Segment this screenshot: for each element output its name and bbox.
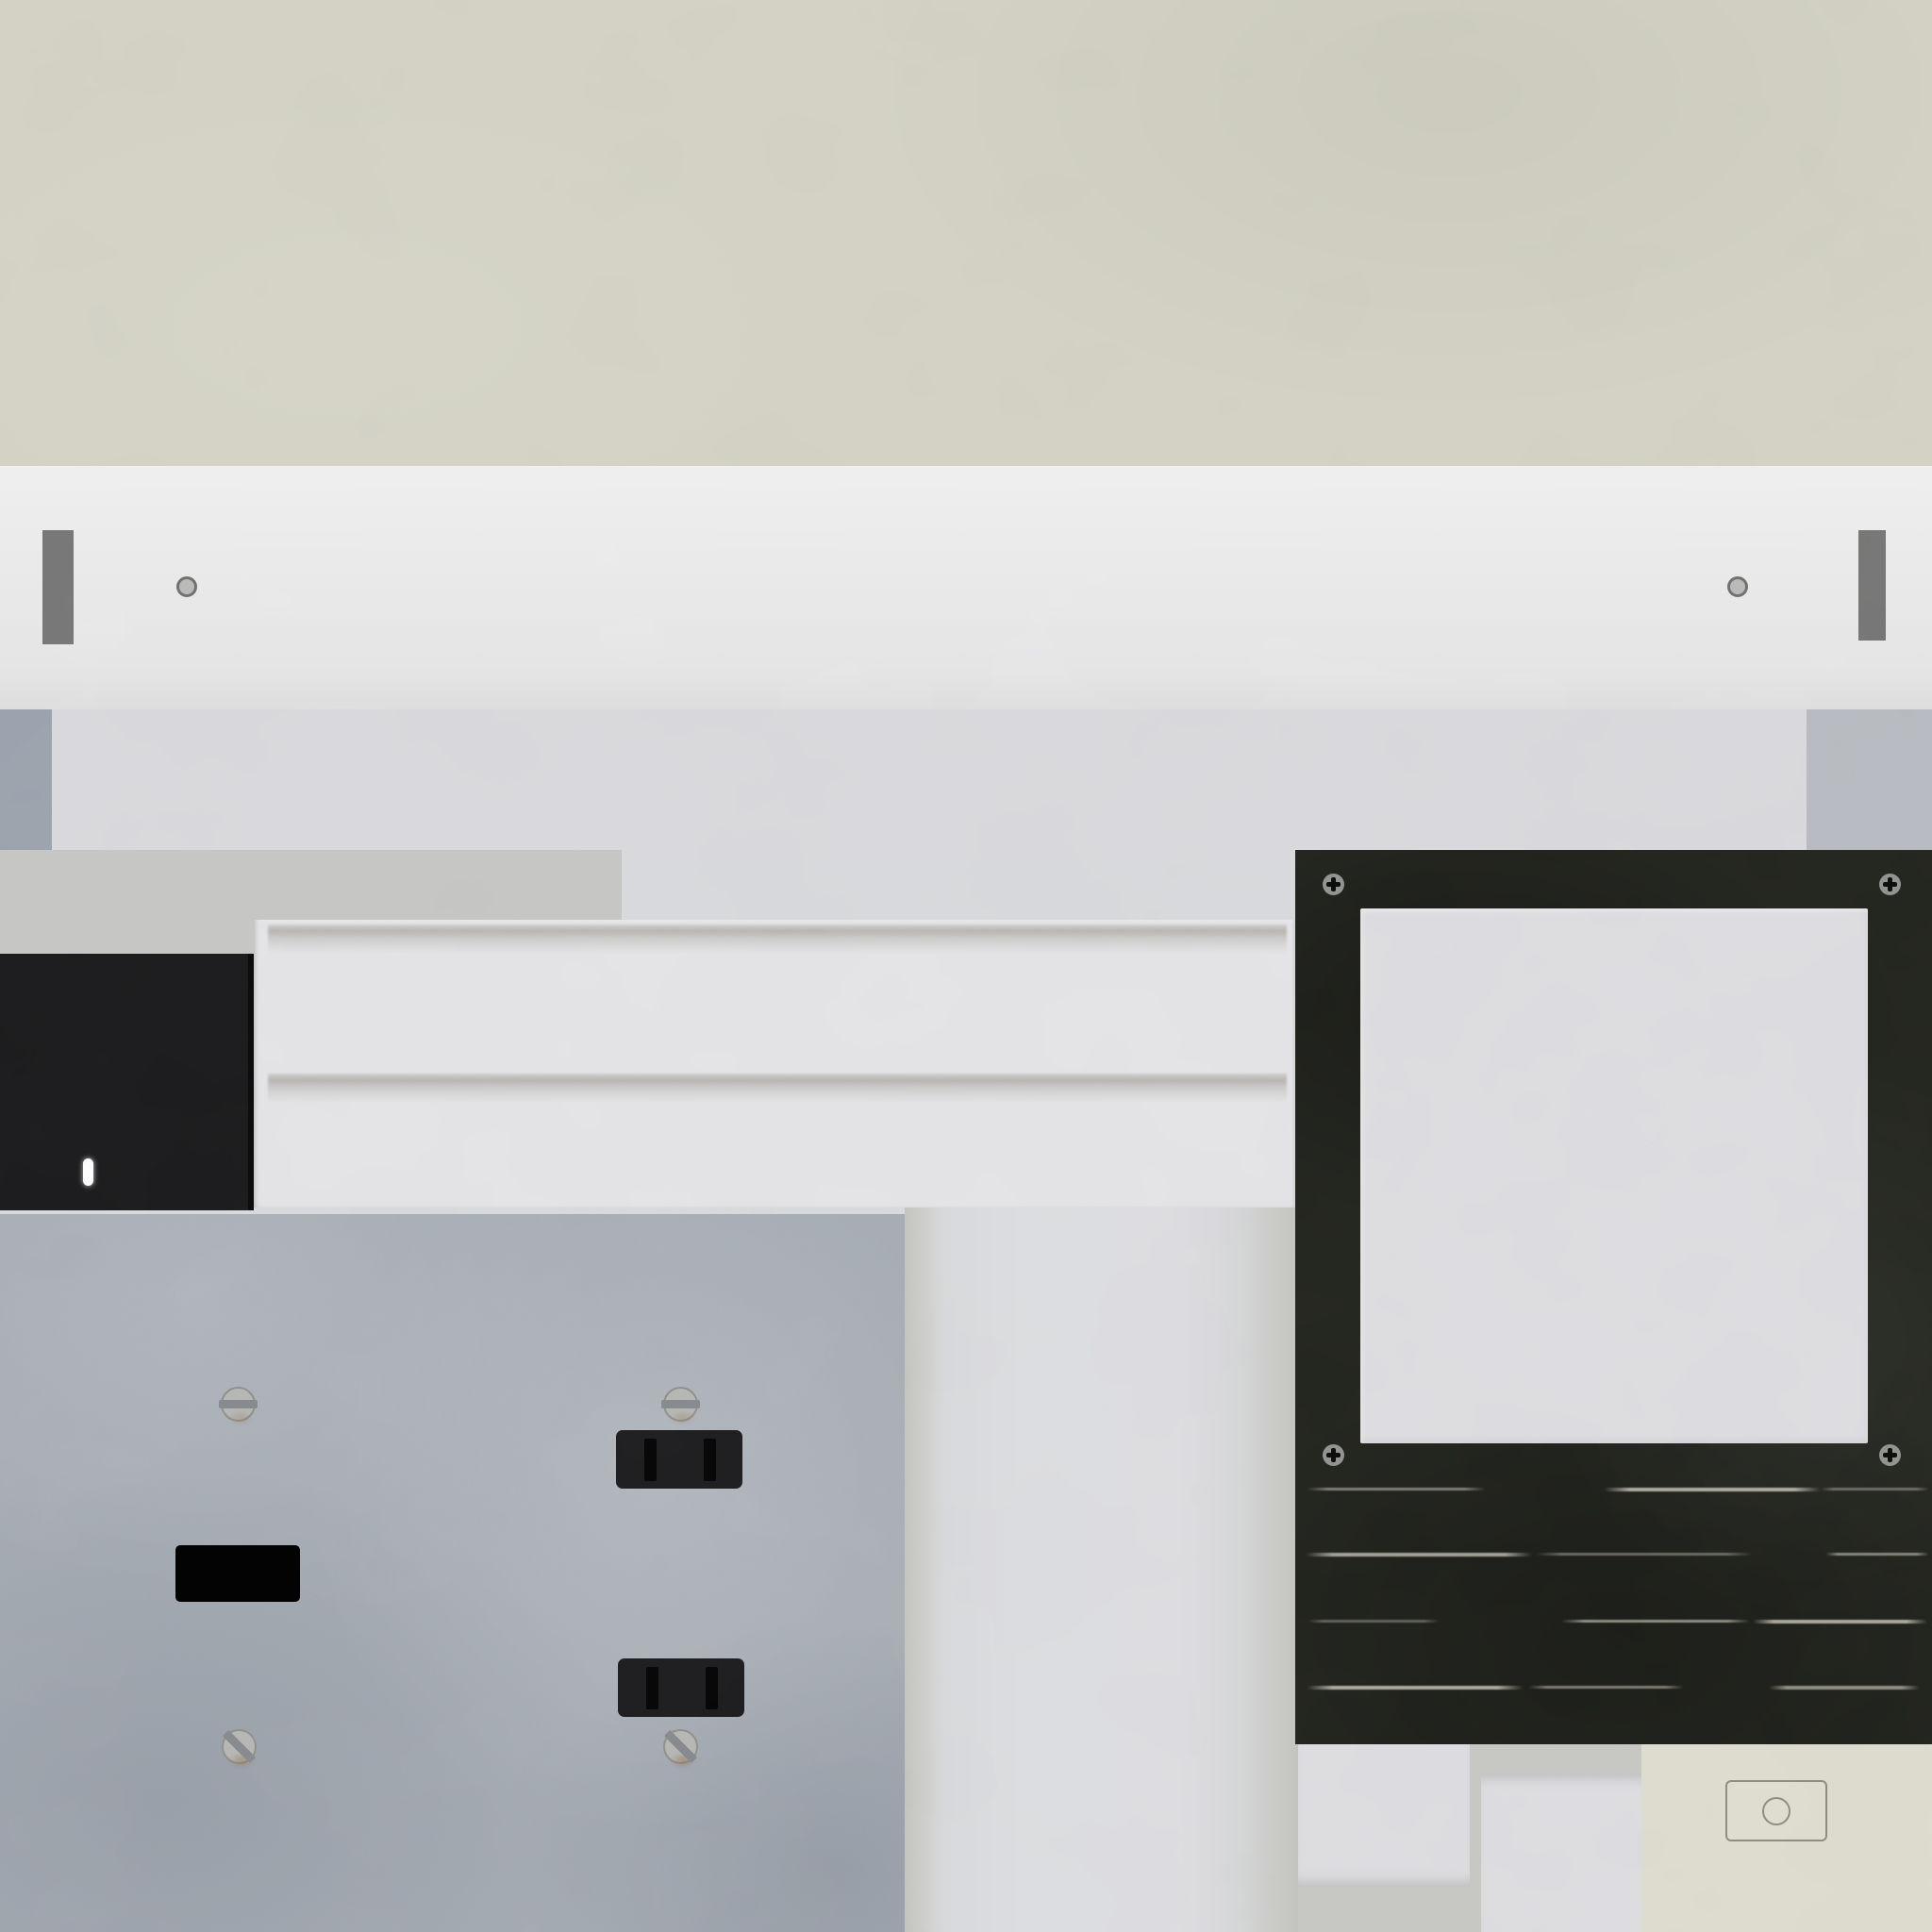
outlet-slot	[706, 1667, 718, 1709]
board-screw	[1323, 1444, 1344, 1466]
chalk-line-segment	[1536, 1553, 1753, 1556]
blank-label[interactable]	[175, 1545, 300, 1602]
rivet	[1727, 576, 1748, 597]
utility-panel	[0, 1214, 905, 1932]
switch-plate-hole	[1762, 1797, 1790, 1825]
drawer-panel[interactable]	[254, 920, 1292, 1207]
upper-wall	[0, 0, 1932, 466]
mounting-bracket	[42, 530, 74, 644]
chalk-line-segment	[1561, 1620, 1750, 1623]
board-screw	[1323, 874, 1344, 895]
switch-plate[interactable]	[1725, 1780, 1827, 1841]
drawer-groove	[268, 924, 1287, 953]
drawer-groove	[268, 1074, 1287, 1102]
outlet-slot	[644, 1439, 657, 1481]
ledge-end-block-left	[0, 709, 52, 850]
ledge-band	[0, 709, 1932, 850]
pillar	[905, 1207, 1298, 1932]
scene-canvas	[0, 0, 1932, 1932]
chalk-line-segment	[1306, 1553, 1532, 1557]
chalk-line-segment	[1825, 1553, 1929, 1556]
panel-screw	[663, 1387, 698, 1422]
screw-slot	[219, 1400, 258, 1408]
outlet-slot	[646, 1667, 658, 1709]
screw-slot	[661, 1400, 700, 1408]
lower-wall-light-right	[1481, 1774, 1641, 1932]
chalk-line-segment	[1528, 1686, 1684, 1689]
mounting-bracket	[1858, 530, 1886, 641]
rivet	[176, 576, 197, 597]
chalk-line-segment	[1769, 1686, 1920, 1690]
ledge-end-block-right	[1807, 709, 1932, 850]
chalk-line-segment	[1307, 1686, 1524, 1690]
panel-screw	[221, 1387, 256, 1422]
panel-screw	[663, 1729, 698, 1764]
outlet-slot	[704, 1439, 716, 1481]
power-outlet[interactable]	[616, 1430, 742, 1489]
lower-wall-light-left	[1298, 1744, 1470, 1887]
chalk-line-segment	[1307, 1620, 1440, 1623]
paper-sheet[interactable]	[1360, 908, 1868, 1443]
panel-screw	[222, 1729, 257, 1764]
counter-hood-front	[0, 466, 1932, 709]
power-outlet[interactable]	[618, 1658, 744, 1717]
rust-stain	[665, 1407, 701, 1428]
chalk-line-segment	[1753, 1620, 1927, 1624]
board-screw	[1879, 1444, 1901, 1466]
tally-mark	[83, 1158, 93, 1186]
chalk-line-segment	[1307, 1488, 1486, 1491]
rust-stain	[223, 1407, 258, 1428]
dark-opening[interactable]	[0, 954, 254, 1210]
board-screw	[1879, 874, 1901, 895]
chalk-line-segment	[1604, 1488, 1821, 1491]
chalk-line-segment	[1821, 1488, 1929, 1491]
